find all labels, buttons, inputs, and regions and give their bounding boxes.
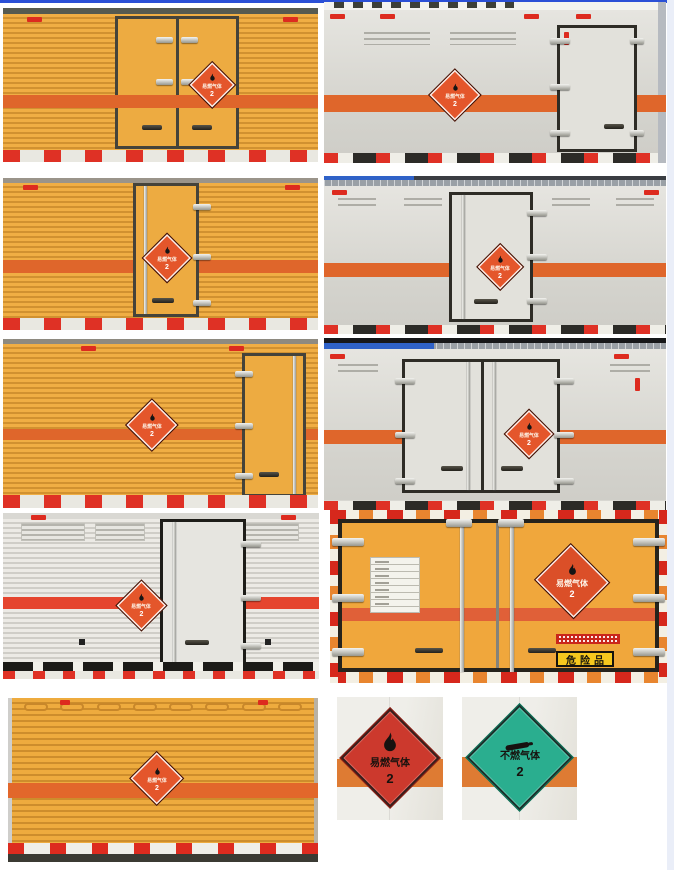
photo-background-blue bbox=[324, 176, 414, 180]
louver-vent bbox=[95, 523, 145, 541]
reflector bbox=[330, 354, 345, 359]
placard-label: 不燃气体 bbox=[500, 752, 540, 762]
door-handle bbox=[192, 125, 212, 130]
flammable-gas-placard: 易燃气体 2 bbox=[133, 755, 181, 803]
flame-icon bbox=[152, 767, 163, 778]
photo-flammable-gas-placard: 易燃气体 2 bbox=[337, 697, 443, 820]
photo-collage: 易燃气体 2 易燃气体 2 bbox=[0, 0, 674, 870]
underbody bbox=[8, 854, 318, 862]
reflector bbox=[635, 378, 640, 391]
reflector bbox=[524, 14, 539, 19]
reflector bbox=[283, 17, 298, 22]
non-flammable-gas-placard: 不燃气体 2 bbox=[473, 711, 567, 805]
reflector bbox=[576, 14, 591, 19]
reflector bbox=[23, 185, 38, 190]
flammable-gas-placard: 易燃气体 2 bbox=[432, 72, 478, 118]
hinge-icon bbox=[332, 538, 364, 546]
rear-door bbox=[160, 519, 246, 669]
striped-frame-bottom bbox=[330, 672, 667, 683]
door-handle bbox=[415, 648, 443, 653]
stamped-handle bbox=[97, 703, 121, 711]
photo-yellow-truck-rear-single-door: 易燃气体 2 bbox=[3, 178, 318, 330]
door-handle bbox=[441, 466, 463, 471]
lock-rod bbox=[467, 362, 470, 490]
hinge-icon bbox=[527, 298, 547, 304]
placard-class-number: 2 bbox=[569, 590, 574, 599]
vent-slots bbox=[338, 198, 376, 208]
placard-label: 易燃气体 bbox=[370, 759, 410, 769]
danger-goods-sign: 危险品 bbox=[556, 651, 614, 667]
door-seam bbox=[496, 523, 499, 668]
door-seam bbox=[176, 19, 179, 146]
hinge-icon bbox=[633, 538, 665, 546]
body-edge bbox=[8, 698, 12, 862]
placard-class-number: 2 bbox=[453, 101, 457, 108]
stamped-handle bbox=[169, 703, 193, 711]
placard-label: 易燃气体 bbox=[490, 266, 510, 271]
placard-class-number: 2 bbox=[165, 264, 169, 271]
hinge-icon bbox=[156, 37, 173, 43]
hinge-icon bbox=[527, 210, 547, 216]
placard-class-number: 2 bbox=[498, 273, 502, 280]
reflector bbox=[281, 515, 296, 520]
hinge-icon bbox=[554, 378, 574, 384]
body-edge bbox=[314, 698, 318, 862]
flame-icon bbox=[207, 73, 218, 84]
hinge-icon bbox=[241, 541, 261, 547]
photo-yellow-truck-rear-double-doors: 易燃气体 2 bbox=[3, 8, 318, 162]
stamped-handle bbox=[278, 703, 302, 711]
striped-frame-top bbox=[330, 510, 667, 519]
reflector bbox=[258, 700, 268, 705]
hinge-icon bbox=[633, 648, 665, 656]
side-guard-rail bbox=[8, 843, 318, 854]
hinge-icon bbox=[550, 38, 570, 44]
flammable-gas-placard: 易燃气体 2 bbox=[145, 236, 189, 280]
hinge-icon bbox=[235, 473, 253, 479]
photo-silver-truck-rear-single-door: 易燃气体 2 bbox=[3, 513, 319, 679]
rear-doors-frame: 易燃气体 2 危险品 bbox=[338, 519, 659, 672]
lock-rod bbox=[293, 356, 296, 494]
hinge-icon bbox=[550, 130, 570, 136]
gas-cylinder-icon bbox=[503, 739, 537, 752]
placard-label: 易燃气体 bbox=[202, 84, 222, 89]
hinge-icon bbox=[241, 595, 261, 601]
door-handle bbox=[501, 466, 523, 471]
rear-bumper bbox=[3, 495, 318, 508]
rear-bumper bbox=[3, 150, 318, 162]
photo-non-flammable-gas-placard: 不燃气体 2 bbox=[462, 697, 577, 820]
vent-slots bbox=[364, 32, 430, 45]
photo-white-truck-rear-double-doors: 易燃气体 2 bbox=[324, 338, 666, 510]
flame-icon bbox=[524, 422, 535, 433]
placard-class-number: 2 bbox=[155, 785, 159, 792]
orange-stripe bbox=[3, 95, 318, 108]
right-border-strip bbox=[667, 0, 674, 870]
photo-background-trees bbox=[334, 2, 514, 8]
door-handle bbox=[152, 298, 174, 303]
hinge-icon bbox=[395, 478, 415, 484]
reflector bbox=[332, 190, 347, 195]
lock-fitting bbox=[265, 639, 271, 645]
reflector bbox=[614, 354, 629, 359]
banner-text-line bbox=[559, 640, 617, 642]
placard-class-number: 2 bbox=[516, 765, 523, 778]
vehicle-info-plate bbox=[370, 557, 420, 613]
door-handle bbox=[604, 124, 624, 129]
vent-slots bbox=[610, 364, 650, 374]
rear-bumper bbox=[324, 153, 658, 163]
placard-label: 易燃气体 bbox=[132, 605, 152, 610]
photo-white-truck-rear-single-door: 易燃气体 2 bbox=[324, 176, 666, 334]
placard-label: 易燃气体 bbox=[147, 778, 167, 783]
stamped-handle bbox=[24, 703, 48, 711]
vent-slots bbox=[404, 198, 442, 208]
lock-rod bbox=[510, 523, 514, 672]
vent-slots bbox=[338, 364, 378, 374]
placard-label: 易燃气体 bbox=[519, 433, 539, 438]
placard-label: 易燃气体 bbox=[157, 257, 177, 262]
hinge-icon bbox=[235, 371, 253, 377]
hinge-icon bbox=[332, 594, 364, 602]
lock-rod bbox=[493, 362, 496, 490]
hinge-icon bbox=[395, 432, 415, 438]
reflector bbox=[81, 346, 96, 351]
hinge-icon bbox=[633, 594, 665, 602]
rear-bumper bbox=[3, 318, 318, 330]
rear-bumper bbox=[3, 671, 319, 679]
reflector bbox=[330, 14, 345, 19]
flammable-gas-placard: 易燃气体 2 bbox=[191, 64, 233, 106]
company-banner bbox=[556, 634, 620, 644]
hinge-icon bbox=[193, 300, 211, 306]
danger-goods-sign-label: 危险品 bbox=[566, 652, 608, 667]
placard-label: 易燃气体 bbox=[142, 424, 162, 429]
flammable-gas-placard: 易燃气体 2 bbox=[507, 412, 551, 456]
rear-bumper bbox=[324, 325, 666, 334]
stamped-handle bbox=[205, 703, 229, 711]
hinge-icon bbox=[193, 254, 211, 260]
hinge-icon bbox=[527, 254, 547, 260]
door-handle bbox=[142, 125, 162, 130]
hinge-icon bbox=[498, 519, 524, 527]
photo-yellow-truck-side-wall: 易燃气体 2 bbox=[8, 698, 318, 862]
banner-text-line bbox=[559, 636, 617, 638]
rear-bumper-black bbox=[3, 662, 319, 671]
flame-icon bbox=[450, 83, 461, 94]
flammable-gas-placard: 易燃气体 2 bbox=[538, 549, 606, 613]
photo-white-truck-rear-right-door: 易燃气体 2 bbox=[324, 2, 666, 163]
vent-slots bbox=[450, 32, 516, 45]
placard-label: 易燃气体 bbox=[556, 580, 588, 588]
hinge-icon bbox=[630, 130, 644, 136]
flammable-gas-placard: 易燃气体 2 bbox=[346, 714, 434, 802]
door-handle bbox=[474, 299, 498, 304]
hinge-icon bbox=[630, 38, 644, 44]
vent-slots bbox=[552, 198, 590, 208]
reflector bbox=[285, 185, 300, 190]
flame-icon bbox=[376, 731, 404, 759]
flammable-gas-placard: 易燃气体 2 bbox=[129, 402, 175, 448]
flame-icon bbox=[564, 563, 581, 580]
reflector bbox=[31, 515, 46, 520]
photo-background-edge bbox=[658, 2, 666, 163]
hinge-icon bbox=[554, 432, 574, 438]
flame-icon bbox=[495, 255, 506, 266]
door-handle bbox=[259, 472, 279, 477]
hinge-icon bbox=[235, 423, 253, 429]
flame-icon bbox=[147, 413, 158, 424]
lock-rod bbox=[462, 195, 465, 319]
hinge-icon bbox=[446, 519, 472, 527]
hinge-icon bbox=[554, 478, 574, 484]
placard-class-number: 2 bbox=[150, 431, 154, 438]
flame-icon bbox=[136, 593, 147, 604]
door-handle bbox=[528, 648, 556, 653]
hinge-icon bbox=[181, 37, 198, 43]
hinge-icon bbox=[550, 84, 570, 90]
flammable-gas-placard: 易燃气体 2 bbox=[119, 583, 164, 628]
hinge-icon bbox=[241, 643, 261, 649]
reflector bbox=[380, 14, 395, 19]
door-handle bbox=[185, 640, 209, 645]
placard-class-number: 2 bbox=[210, 91, 214, 98]
lock-fitting bbox=[79, 639, 85, 645]
placard-class-number: 2 bbox=[140, 611, 144, 618]
lock-rod bbox=[173, 522, 176, 666]
hinge-icon bbox=[332, 648, 364, 656]
photo-yellow-truck-rear-closeup: 易燃气体 2 危险品 bbox=[330, 510, 667, 683]
placard-class-number: 2 bbox=[527, 440, 531, 447]
flammable-gas-placard: 易燃气体 2 bbox=[479, 246, 521, 288]
flame-icon bbox=[162, 246, 173, 257]
reflector bbox=[229, 346, 244, 351]
placard-class-number: 2 bbox=[386, 772, 393, 785]
hinge-icon bbox=[156, 79, 173, 85]
louver-vent bbox=[21, 523, 85, 541]
door-seam bbox=[481, 362, 484, 490]
info-plate-text bbox=[375, 561, 389, 609]
lock-rod bbox=[460, 523, 464, 672]
reflector bbox=[27, 17, 42, 22]
vent-slots bbox=[616, 198, 654, 208]
reflector bbox=[60, 700, 70, 705]
rear-bumper bbox=[324, 501, 666, 510]
photo-yellow-truck-rear-right-door: 易燃气体 2 bbox=[3, 339, 318, 508]
hinge-icon bbox=[193, 204, 211, 210]
reflector bbox=[644, 190, 659, 195]
hinge-icon bbox=[395, 378, 415, 384]
placard-label: 易燃气体 bbox=[445, 94, 465, 99]
stamped-handle bbox=[133, 703, 157, 711]
